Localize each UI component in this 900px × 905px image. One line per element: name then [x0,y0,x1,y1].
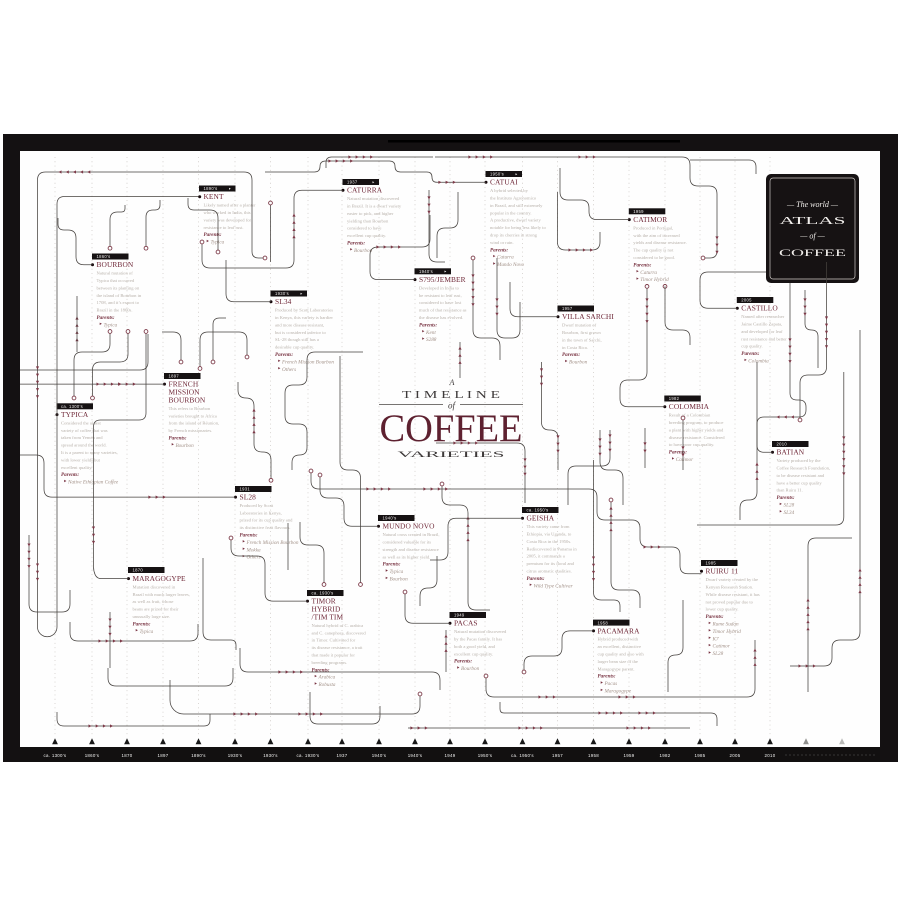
svg-text:resistance to leaf rust.: resistance to leaf rust. [204,225,244,230]
svg-text:BOURBON: BOURBON [97,260,134,269]
svg-text:COLOMBIA: COLOMBIA [669,402,710,411]
svg-text:Native Ethiopian Coffee: Native Ethiopian Coffee [67,479,119,486]
svg-text:Arabica: Arabica [318,675,336,681]
svg-text:excellent quality.: excellent quality. [61,465,92,470]
svg-text:beans are prized for their: beans are prized for their [133,607,179,612]
svg-text:Bourbon: Bourbon [176,443,195,449]
svg-text:Parents:: Parents: [490,247,508,253]
svg-text:1937: 1937 [337,753,348,758]
svg-text:ca. 1950's: ca. 1950's [511,753,534,758]
svg-text:cup quality.: cup quality. [741,344,762,349]
svg-text:1950's: 1950's [478,753,493,758]
svg-text:1897: 1897 [158,753,169,758]
svg-text:that made it popular for: that made it popular for [312,653,356,658]
svg-text:Parents:: Parents: [777,495,795,501]
svg-text:the disease has evolved.: the disease has evolved. [419,315,463,320]
svg-text:MARAGOGYPE: MARAGOGYPE [133,574,187,583]
svg-text:Parents:: Parents: [383,562,401,568]
svg-text:This variety came from: This variety came from [527,524,570,529]
svg-text:1870: 1870 [133,568,144,573]
svg-text:SL34: SL34 [275,297,292,306]
svg-text:Developed in India to: Developed in India to [419,285,460,290]
svg-text:CATUAI: CATUAI [490,178,518,187]
svg-text:S795/JEMBER: S795/JEMBER [419,275,466,284]
svg-text:TYPICA: TYPICA [61,410,89,419]
svg-text:1897: 1897 [169,374,180,379]
svg-text:1930’s: 1930’s [275,291,289,296]
svg-text:2005: 2005 [741,298,752,303]
svg-text:the Instituto Agronomico: the Instituto Agronomico [490,196,537,201]
svg-text:1957: 1957 [562,306,573,311]
svg-text:considered to have lost: considered to have lost [419,300,462,305]
svg-text:Kenyan Research Station.: Kenyan Research Station. [706,585,754,590]
svg-text:A hybrid selected by: A hybrid selected by [490,188,529,193]
svg-text:1930's: 1930's [263,753,278,758]
svg-text:Parents:: Parents: [312,667,330,673]
svg-text:Colombia: Colombia [748,359,769,365]
svg-text:S288: S288 [426,337,437,343]
svg-text:desirable cup quality.: desirable cup quality. [275,345,314,350]
svg-text:MUNDO NOVO: MUNDO NOVO [383,522,436,531]
svg-text:KENT: KENT [204,192,224,201]
svg-text:variety was developed for: variety was developed for [204,217,252,222]
svg-text:Others: Others [282,367,296,373]
svg-text:1930's: 1930's [228,753,243,758]
svg-text:wind or rain.: wind or rain. [490,240,514,245]
svg-text:Likely named after a planter: Likely named after a planter [204,203,257,208]
svg-text:yields and disease resistance.: yields and disease resistance. [633,240,687,245]
svg-text:Parents:: Parents: [633,262,651,268]
svg-text:GEISHA: GEISHA [527,514,555,523]
svg-text:have a better cup quality: have a better cup quality [777,480,823,485]
svg-text:BOURBON: BOURBON [169,396,206,405]
svg-text:to have poor cup quality.: to have poor cup quality. [669,442,715,447]
svg-text:1982: 1982 [669,396,680,401]
svg-text:and developed for leaf: and developed for leaf [741,329,783,334]
svg-text:citrus aromatic qualities.: citrus aromatic qualities. [527,569,572,574]
svg-text:Rume Sudan: Rume Sudan [712,622,739,628]
svg-text:taken from Yemen and: taken from Yemen and [61,435,103,440]
svg-text:/TIM TIM: /TIM TIM [312,613,344,622]
svg-text:Parents:: Parents: [240,533,258,539]
svg-text:considered to be good.: considered to be good. [633,255,675,260]
svg-text:ca. 1300's: ca. 1300's [44,753,67,758]
svg-text:Parents:: Parents: [133,621,151,627]
svg-text:Typica that occurred: Typica that occurred [97,278,135,283]
svg-text:Typica: Typica [140,629,154,635]
svg-text:in Brazil. It is a dwarf varie: in Brazil. It is a dwarf variety [347,204,402,209]
svg-text:by the Pacas family. It has: by the Pacas family. It has [454,637,502,642]
svg-text:PACAS: PACAS [454,619,478,628]
svg-text:RUIRU 11: RUIRU 11 [706,567,739,576]
svg-text:1959: 1959 [633,209,644,214]
svg-text:Timor Hybrid: Timor Hybrid [713,629,742,635]
svg-text:as well as its higher yield.: as well as its higher yield. [383,554,431,559]
svg-text:Caturra: Caturra [640,270,657,276]
svg-text:Parents:: Parents: [61,472,79,478]
svg-text:popular in the country.: popular in the country. [490,210,532,215]
svg-text:Brazil in the 1860s.: Brazil in the 1860s. [97,308,133,313]
svg-text:2005: 2005 [730,753,741,758]
svg-text:Parents:: Parents: [204,232,222,238]
svg-text:drop its cherries in strong: drop its cherries in strong [490,233,538,238]
svg-text:excellent cup quality.: excellent cup quality. [454,651,493,656]
svg-text:French Mission Bourbon: French Mission Bourbon [246,540,299,546]
svg-text:1870: 1870 [122,753,133,758]
svg-text:Natural mutation discovered: Natural mutation discovered [454,629,507,634]
svg-text:1890’s: 1890’s [204,186,218,191]
svg-text:Parents:: Parents: [97,315,115,321]
svg-text:breeding programs.: breeding programs. [312,660,348,665]
svg-text:1890's: 1890's [191,753,206,758]
svg-text:VARIETIES: VARIETIES [398,449,506,459]
svg-text:its distinctive fruit flavours: its distinctive fruit flavours. [240,525,291,530]
svg-text:Parents:: Parents: [706,614,724,620]
svg-text:COFFEE: COFFEE [779,249,846,259]
svg-text:1940’s: 1940’s [383,516,397,521]
svg-text:Hybrid produced with: Hybrid produced with [598,637,639,642]
svg-text:Natural hybrid of C. arabica: Natural hybrid of C. arabica [312,623,364,628]
svg-text:Catimor: Catimor [713,644,731,650]
svg-text:premium for its floral and: premium for its floral and [527,561,575,566]
svg-text:in Timor. Cultivated for: in Timor. Cultivated for [312,638,356,643]
svg-text:with the aim of increased: with the aim of increased [633,233,680,238]
svg-text:Typica: Typica [211,240,225,246]
svg-text:K7: K7 [712,636,719,642]
svg-text:to be disease resistant and: to be disease resistant and [777,473,825,478]
svg-text:PACAMARA: PACAMARA [598,626,641,635]
svg-text:Rediscovered in Panama in: Rediscovered in Panama in [527,546,578,551]
svg-text:Natural mutation discovered: Natural mutation discovered [347,196,400,201]
svg-text:variety of coffee that was: variety of coffee that was [61,428,108,433]
svg-text:not proved popular due to: not proved popular due to [706,599,754,604]
svg-text:1950’s: 1950’s [490,172,504,177]
svg-text:Mundo Novo: Mundo Novo [496,262,524,268]
svg-text:with lower yields but: with lower yields but [61,457,101,462]
svg-text:1959: 1959 [624,753,635,758]
svg-text:considered to have: considered to have [347,226,381,231]
svg-text:Maragogype: Maragogype [604,689,632,695]
svg-text:but is considered inferior to: but is considered inferior to [275,330,326,335]
svg-text:1940’s: 1940’s [419,269,433,274]
svg-text:Parents:: Parents: [598,674,616,680]
svg-text:Result of a Colombian: Result of a Colombian [669,413,711,418]
svg-text:strength and disease resistanc: strength and disease resistance [383,547,439,552]
svg-text:CATURRA: CATURRA [347,186,383,195]
svg-text:1949: 1949 [454,613,465,618]
svg-text:the island of Bourbon in: the island of Bourbon in [97,293,142,298]
svg-text:Produced by Scott: Produced by Scott [240,503,274,508]
svg-text:Costa Rica in the 1950s.: Costa Rica in the 1950s. [527,539,572,544]
svg-text:Timor Hybrid: Timor Hybrid [640,277,669,283]
svg-text:Parents:: Parents: [669,450,687,456]
svg-text:unusually large size.: unusually large size. [133,614,171,619]
svg-text:Parents:: Parents: [347,241,365,247]
svg-text:Parents:: Parents: [562,352,580,358]
svg-text:— The world —: — The world — [786,200,839,209]
svg-text:2010: 2010 [765,753,776,758]
svg-text:Parents:: Parents: [419,322,437,328]
svg-text:much of that resistance as: much of that resistance as [419,308,467,313]
svg-text:Robusta: Robusta [318,682,336,688]
svg-text:notable for being less likely: notable for being less likely to [490,225,546,230]
svg-text:Produced by Scott Laboratories: Produced by Scott Laboratories [275,308,333,313]
svg-text:1940's: 1940's [372,753,387,758]
svg-text:Natural mutation of: Natural mutation of [97,271,134,276]
svg-text:Others: Others [247,555,261,561]
svg-text:BATIAN: BATIAN [777,448,805,457]
svg-text:1985: 1985 [695,753,706,758]
svg-text:1860's: 1860's [85,753,100,758]
svg-text:Maragogype parent.: Maragogype parent. [598,666,635,671]
svg-text:Parents:: Parents: [527,576,545,582]
svg-text:1949: 1949 [445,753,456,758]
svg-text:T I M E L I N E: T I M E L I N E [402,390,500,401]
svg-text:1957: 1957 [552,753,563,758]
svg-text:This refers to Bourbon: This refers to Bourbon [169,406,211,411]
svg-text:Pacas: Pacas [604,681,618,687]
svg-text:— of —: — of — [799,232,825,241]
svg-text:1931: 1931 [240,487,251,492]
svg-text:1958: 1958 [598,620,609,625]
svg-text:1860’s: 1860’s [97,254,111,259]
svg-text:disease resistance. Considered: disease resistance. Considered [669,435,725,440]
svg-text:ca. 1300’s: ca. 1300’s [61,404,83,409]
svg-text:SL28: SL28 [784,503,795,509]
svg-text:Parents:: Parents: [741,351,759,357]
svg-text:Bourbon: Bourbon [569,360,588,366]
svg-text:spread around the world.: spread around the world. [61,443,107,448]
svg-text:varieties brought to Africa: varieties brought to Africa [169,413,217,418]
svg-text:CASTILLO: CASTILLO [741,304,778,313]
svg-text:in Costa Rica.: in Costa Rica. [562,345,588,350]
svg-text:Bourbon: Bourbon [461,666,480,672]
svg-text:Parents:: Parents: [275,352,293,358]
svg-text:lower cup quality.: lower cup quality. [706,607,739,612]
svg-text:excellent cup quality.: excellent cup quality. [347,233,386,238]
svg-text:Dwarf variety created by the: Dwarf variety created by the [706,577,759,582]
svg-text:Dwarf mutation of: Dwarf mutation of [562,323,597,328]
svg-text:CATIMOR: CATIMOR [633,215,667,224]
svg-text:French Mission Bourbon: French Mission Bourbon [281,359,334,365]
svg-text:1958: 1958 [588,753,599,758]
svg-text:Parents:: Parents: [454,659,472,665]
svg-text:SL-28 though still has a: SL-28 though still has a [275,337,319,342]
svg-text:VILLA SARCHI: VILLA SARCHI [562,312,614,321]
svg-text:ca. 1930's: ca. 1930's [297,753,320,758]
svg-text:Typica: Typica [390,569,404,575]
svg-text:Bourbon: Bourbon [390,577,409,583]
svg-text:rust resistance and better: rust resistance and better [741,336,787,341]
svg-text:a plant with higher yields and: a plant with higher yields and [669,427,724,432]
svg-text:COFFEE: COFFEE [380,407,523,450]
svg-text:ATLAS: ATLAS [780,216,846,227]
svg-text:prized for its cup quality and: prized for its cup quality and [240,518,294,523]
svg-text:Mutation discovered in: Mutation discovered in [133,584,176,589]
svg-text:1982: 1982 [660,753,671,758]
svg-text:Mokka: Mokka [246,547,262,553]
svg-text:cup quality and also with: cup quality and also with [598,652,645,657]
svg-text:yielding than Bourbon: yielding than Bourbon [347,218,389,223]
svg-text:ca. 1930’s: ca. 1930’s [312,591,334,596]
svg-text:1940's: 1940's [408,753,423,758]
svg-text:1985: 1985 [706,561,717,566]
svg-text:Catimor: Catimor [676,457,694,463]
svg-text:Caturra: Caturra [497,255,514,261]
svg-text:ca. 1950’s: ca. 1950’s [527,508,549,513]
svg-text:1937: 1937 [347,180,358,185]
svg-text:Named after researcher: Named after researcher [741,314,784,319]
svg-text:Kent: Kent [425,330,436,336]
svg-text:The cup quality is not: The cup quality is not [633,248,674,253]
svg-text:Parents:: Parents: [169,436,187,442]
svg-text:Wild Type Cultivar: Wild Type Cultivar [534,583,574,589]
svg-text:Typica: Typica [104,322,118,328]
svg-text:between its planting on: between its planting on [97,285,140,290]
svg-text:A: A [449,378,455,387]
svg-text:SL28: SL28 [713,651,724,657]
svg-text:considered valuable for its: considered valuable for its [383,540,432,545]
svg-text:by French missionaries.: by French missionaries. [169,428,213,433]
svg-text:2010: 2010 [777,442,788,447]
svg-text:larger bean size of the: larger bean size of the [598,659,638,664]
svg-text:Variety produced by the: Variety produced by the [777,458,821,463]
svg-text:than Ruiru 11.: than Ruiru 11. [777,488,803,493]
svg-text:SL34: SL34 [784,509,795,516]
svg-text:SL28: SL28 [240,493,257,502]
